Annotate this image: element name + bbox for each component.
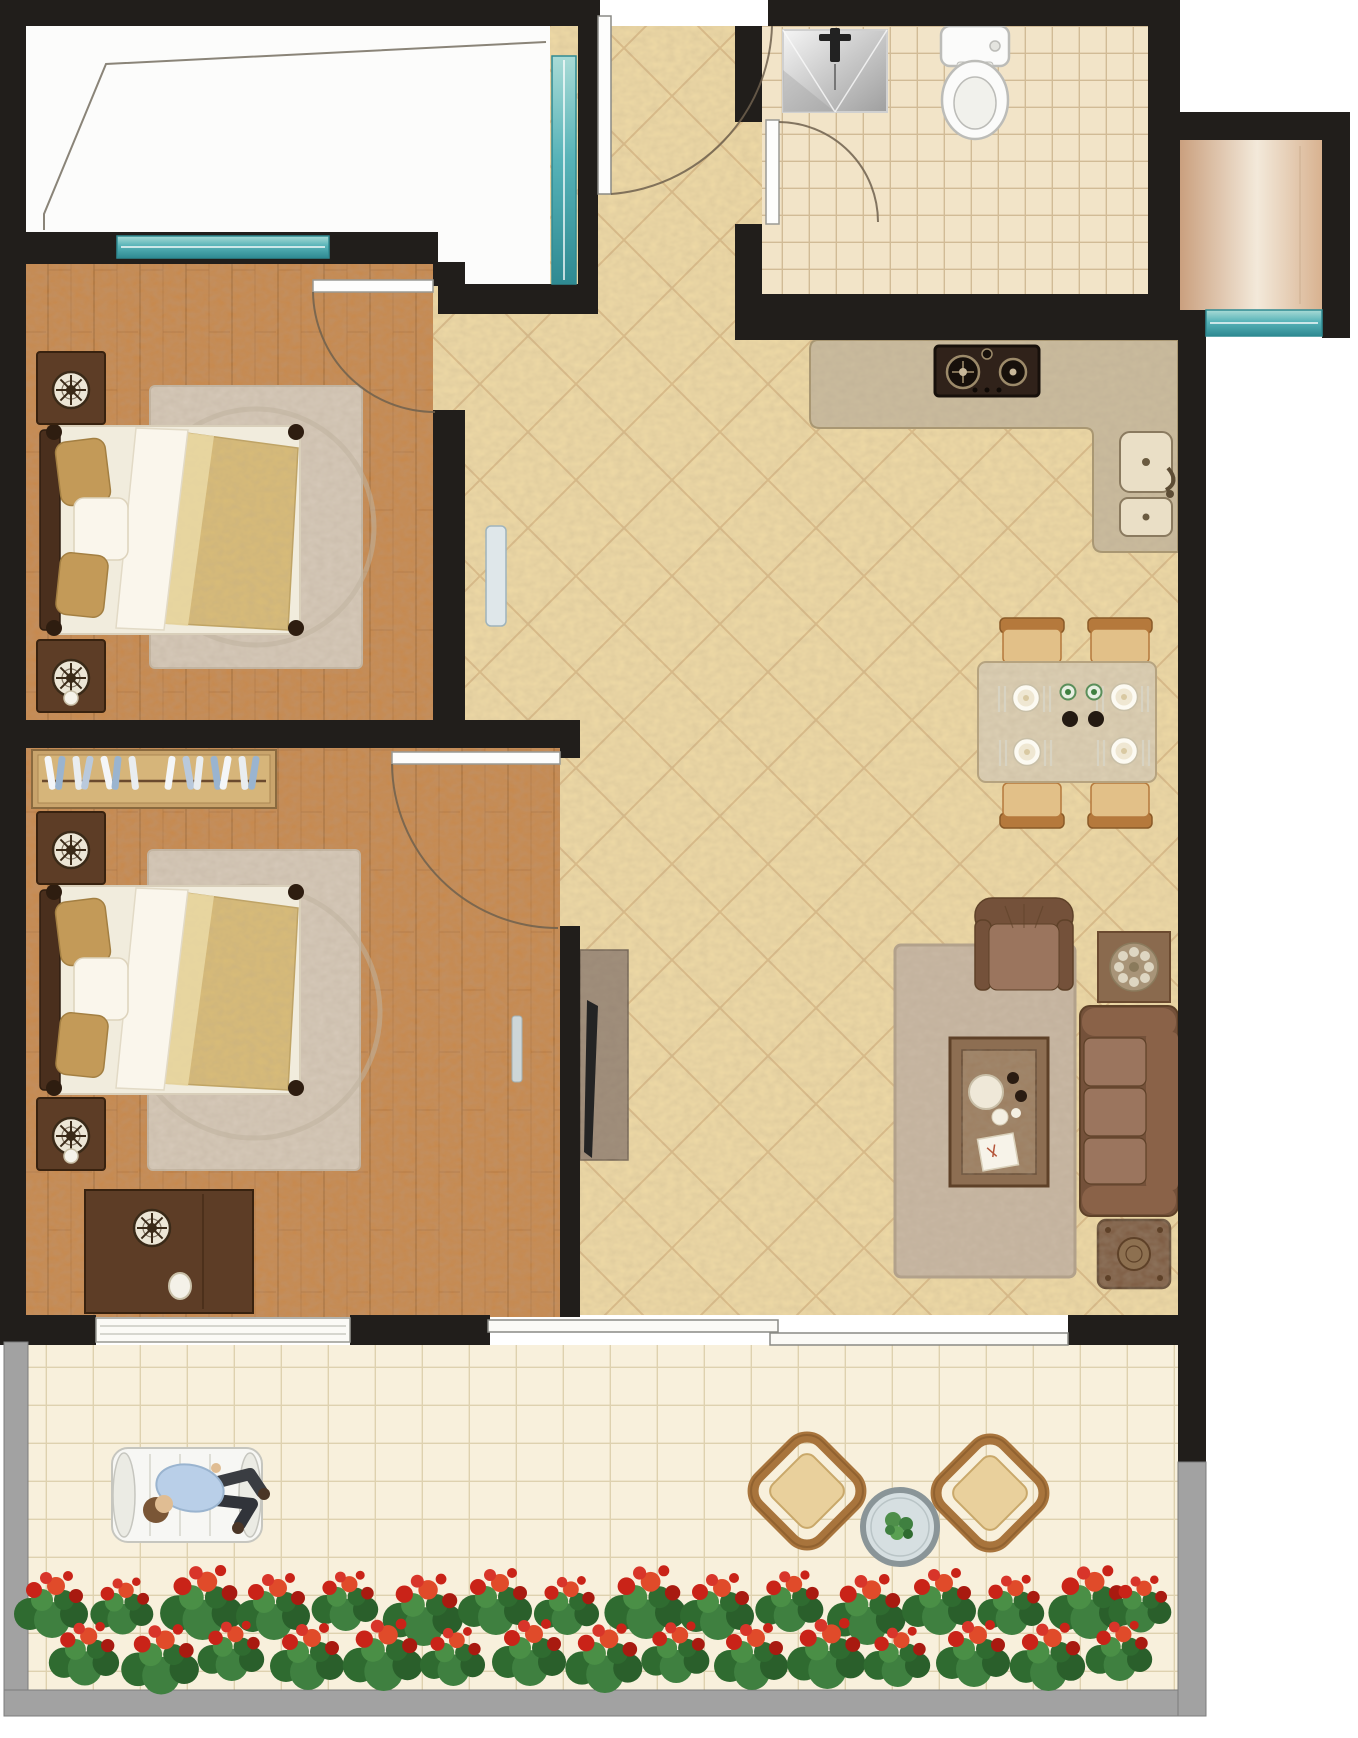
balcony-rail-right (1178, 1462, 1206, 1716)
balcony-rail-bottom (4, 1690, 1206, 1716)
wall-bottom-right (1068, 1315, 1178, 1345)
mirror-strip (512, 1016, 522, 1082)
coffee-table (950, 1038, 1048, 1186)
cup-decor (64, 691, 78, 705)
bedroom-2-bed (40, 884, 304, 1096)
bay-window-plate (26, 26, 550, 232)
sliding-door-panel-2 (770, 1333, 1068, 1345)
jug-decor (169, 1273, 191, 1299)
dining-chair-2 (1088, 618, 1152, 663)
lounge-chair-with-person (112, 1448, 270, 1542)
bedroom1-door-leaf (313, 280, 433, 292)
wall-between-bedrooms (26, 720, 580, 748)
floor-plan (0, 0, 1358, 1738)
wall-bay-right (578, 26, 598, 288)
wall-bottom-pier (350, 1315, 490, 1345)
wall-bedroom2-right-stub (560, 748, 580, 758)
bedroom2-door-leaf (392, 752, 560, 764)
wall-bath-left-lower (735, 224, 762, 296)
dining-chair-3 (1000, 783, 1064, 828)
bedroom-2-nightstand-top (37, 812, 105, 884)
bathroom-door-leaf (766, 120, 779, 224)
bedroom-1 (37, 352, 374, 712)
wall-niche-right (1322, 112, 1350, 338)
cup-decor (64, 1149, 78, 1163)
bedroom-2-dresser (85, 1190, 253, 1313)
wall-top-right (768, 0, 1148, 26)
faucet-icon (830, 28, 840, 62)
sofa-three-seat (1080, 1006, 1178, 1216)
round-glass-table (863, 1490, 937, 1564)
flower-side-table (1098, 932, 1170, 1002)
wardrobe (32, 750, 276, 808)
wall-right-main (1178, 310, 1206, 1462)
toilet (941, 26, 1009, 139)
bedroom-1-nightstand-top (37, 352, 105, 424)
dining-chair-4 (1088, 783, 1152, 828)
wall-bath-right (1148, 0, 1180, 314)
window-bedroom2-balcony (96, 1318, 350, 1342)
kitchen-sink (1120, 432, 1174, 536)
bedroom-1-bed (40, 424, 304, 636)
wall-bedroom1-right-stub (433, 262, 465, 286)
entry-door-leaf (598, 16, 611, 194)
dining-chair-1 (1000, 618, 1064, 663)
magazine (977, 1133, 1018, 1171)
ottoman (1098, 1220, 1170, 1288)
gas-hob (935, 346, 1039, 396)
floor-plan-canvas (0, 0, 1358, 1738)
balcony-rail-left (4, 1342, 28, 1716)
wall-left (0, 0, 26, 1345)
wall-niche-top (1148, 112, 1350, 140)
wall-bottom-left (0, 1315, 96, 1345)
hall-bench (486, 526, 506, 626)
wall-bath-bottom (735, 294, 1180, 340)
sliding-door-panel-1 (488, 1320, 778, 1332)
tea-tray (969, 1075, 1003, 1109)
wall-bedroom2-right (560, 926, 580, 1317)
wall-entry-left (438, 284, 598, 314)
wall-top-left (0, 0, 600, 26)
washbasin (783, 28, 887, 112)
armchair (975, 898, 1073, 990)
wall-bedroom1-right (433, 410, 465, 722)
